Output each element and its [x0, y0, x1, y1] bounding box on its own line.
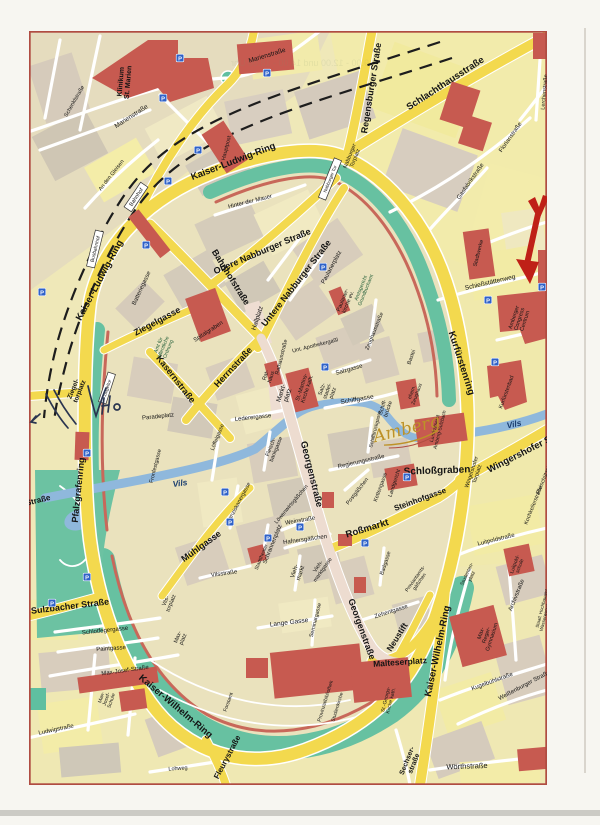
parking-icon: P — [484, 296, 492, 304]
map-label: KlinikumSt. Marien — [116, 65, 133, 100]
parking-icon: P — [83, 449, 91, 457]
svg-text:P: P — [540, 285, 544, 291]
parking-icon: P — [221, 488, 229, 496]
svg-text:Schloßgraben: Schloßgraben — [404, 464, 471, 477]
map-label: Schloßgraben — [404, 464, 471, 477]
parking-icon: P — [264, 534, 272, 542]
map-label: Vils — [172, 477, 188, 489]
parking-icon: P — [491, 358, 499, 366]
svg-text:P: P — [486, 298, 490, 304]
svg-text:P: P — [323, 365, 327, 371]
parking-icon: P — [361, 539, 369, 547]
svg-text:P: P — [298, 525, 302, 531]
svg-text:P: P — [85, 451, 89, 457]
parking-icon: P — [226, 518, 234, 526]
svg-text:P: P — [228, 520, 232, 526]
svg-text:P: P — [223, 490, 227, 496]
svg-text:P: P — [166, 179, 170, 185]
svg-text:Vils: Vils — [172, 477, 188, 489]
paper-crease — [584, 28, 586, 773]
svg-text:P: P — [363, 541, 367, 547]
parking-icon: P — [538, 283, 546, 291]
svg-text:P: P — [50, 601, 54, 607]
svg-text:P: P — [266, 536, 270, 542]
parking-icon: P — [321, 363, 329, 371]
scan-edge-shadow — [0, 810, 600, 816]
svg-text:P: P — [144, 243, 148, 249]
maltese-complex — [270, 643, 364, 698]
svg-text:P: P — [321, 265, 325, 271]
svg-text:P: P — [405, 475, 409, 481]
svg-text:P: P — [178, 56, 182, 62]
svg-text:KlinikumSt. Marien: KlinikumSt. Marien — [116, 65, 133, 100]
amberg-city-map: 9.00 - 12.00 und 14.00 - 18.00 UhrRegens… — [0, 0, 600, 825]
parking-icon: P — [38, 288, 46, 296]
parking-icon: P — [263, 69, 271, 77]
parking-icon: P — [296, 523, 304, 531]
map-content: 9.00 - 12.00 und 14.00 - 18.00 UhrRegens… — [25, 30, 588, 803]
parking-icon: P — [83, 573, 91, 581]
parking-icon: P — [194, 146, 202, 154]
map-label: Wörthstraße — [446, 761, 488, 771]
parking-icon: P — [142, 241, 150, 249]
svg-text:P: P — [161, 96, 165, 102]
parking-icon: P — [48, 599, 56, 607]
svg-text:P: P — [85, 575, 89, 581]
parking-icon: P — [403, 473, 411, 481]
svg-text:P: P — [265, 71, 269, 77]
parking-icon: P — [319, 263, 327, 271]
svg-text:P: P — [196, 148, 200, 154]
svg-text:P: P — [40, 290, 44, 296]
parking-icon: P — [176, 54, 184, 62]
parking-icon: P — [159, 94, 167, 102]
svg-text:P: P — [493, 360, 497, 366]
parking-icon: P — [164, 177, 172, 185]
scanned-map-page: 9.00 - 12.00 und 14.00 - 18.00 UhrRegens… — [0, 0, 600, 825]
svg-text:Wörthstraße: Wörthstraße — [446, 761, 488, 771]
